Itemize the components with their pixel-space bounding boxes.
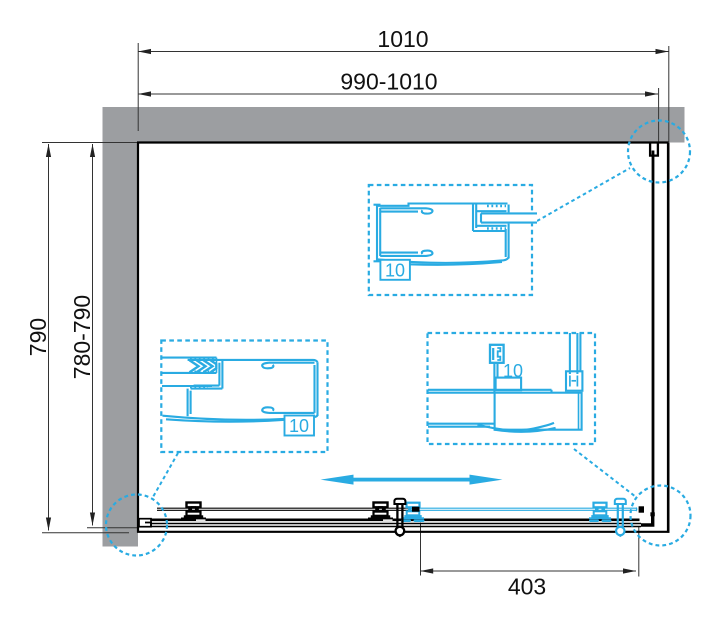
svg-text:10: 10 [385,261,405,281]
svg-text:10: 10 [503,361,523,381]
svg-text:790: 790 [25,318,51,356]
svg-text:1010: 1010 [377,26,428,52]
svg-text:403: 403 [508,574,546,600]
svg-text:10: 10 [289,416,309,436]
svg-text:780-790: 780-790 [69,295,95,379]
svg-text:990-1010: 990-1010 [340,69,437,95]
